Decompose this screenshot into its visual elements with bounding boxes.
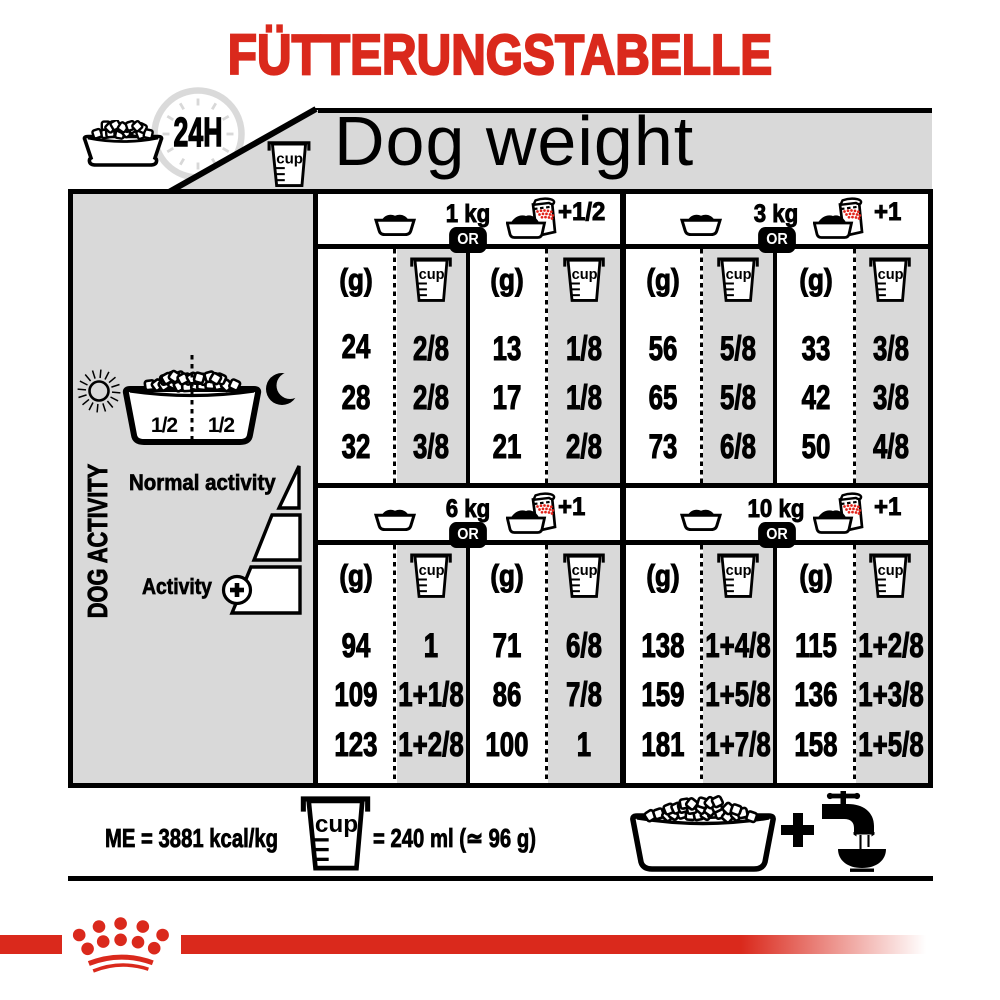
svg-text:1/2: 1/2	[151, 414, 178, 437]
svg-text:1/2: 1/2	[208, 414, 235, 437]
